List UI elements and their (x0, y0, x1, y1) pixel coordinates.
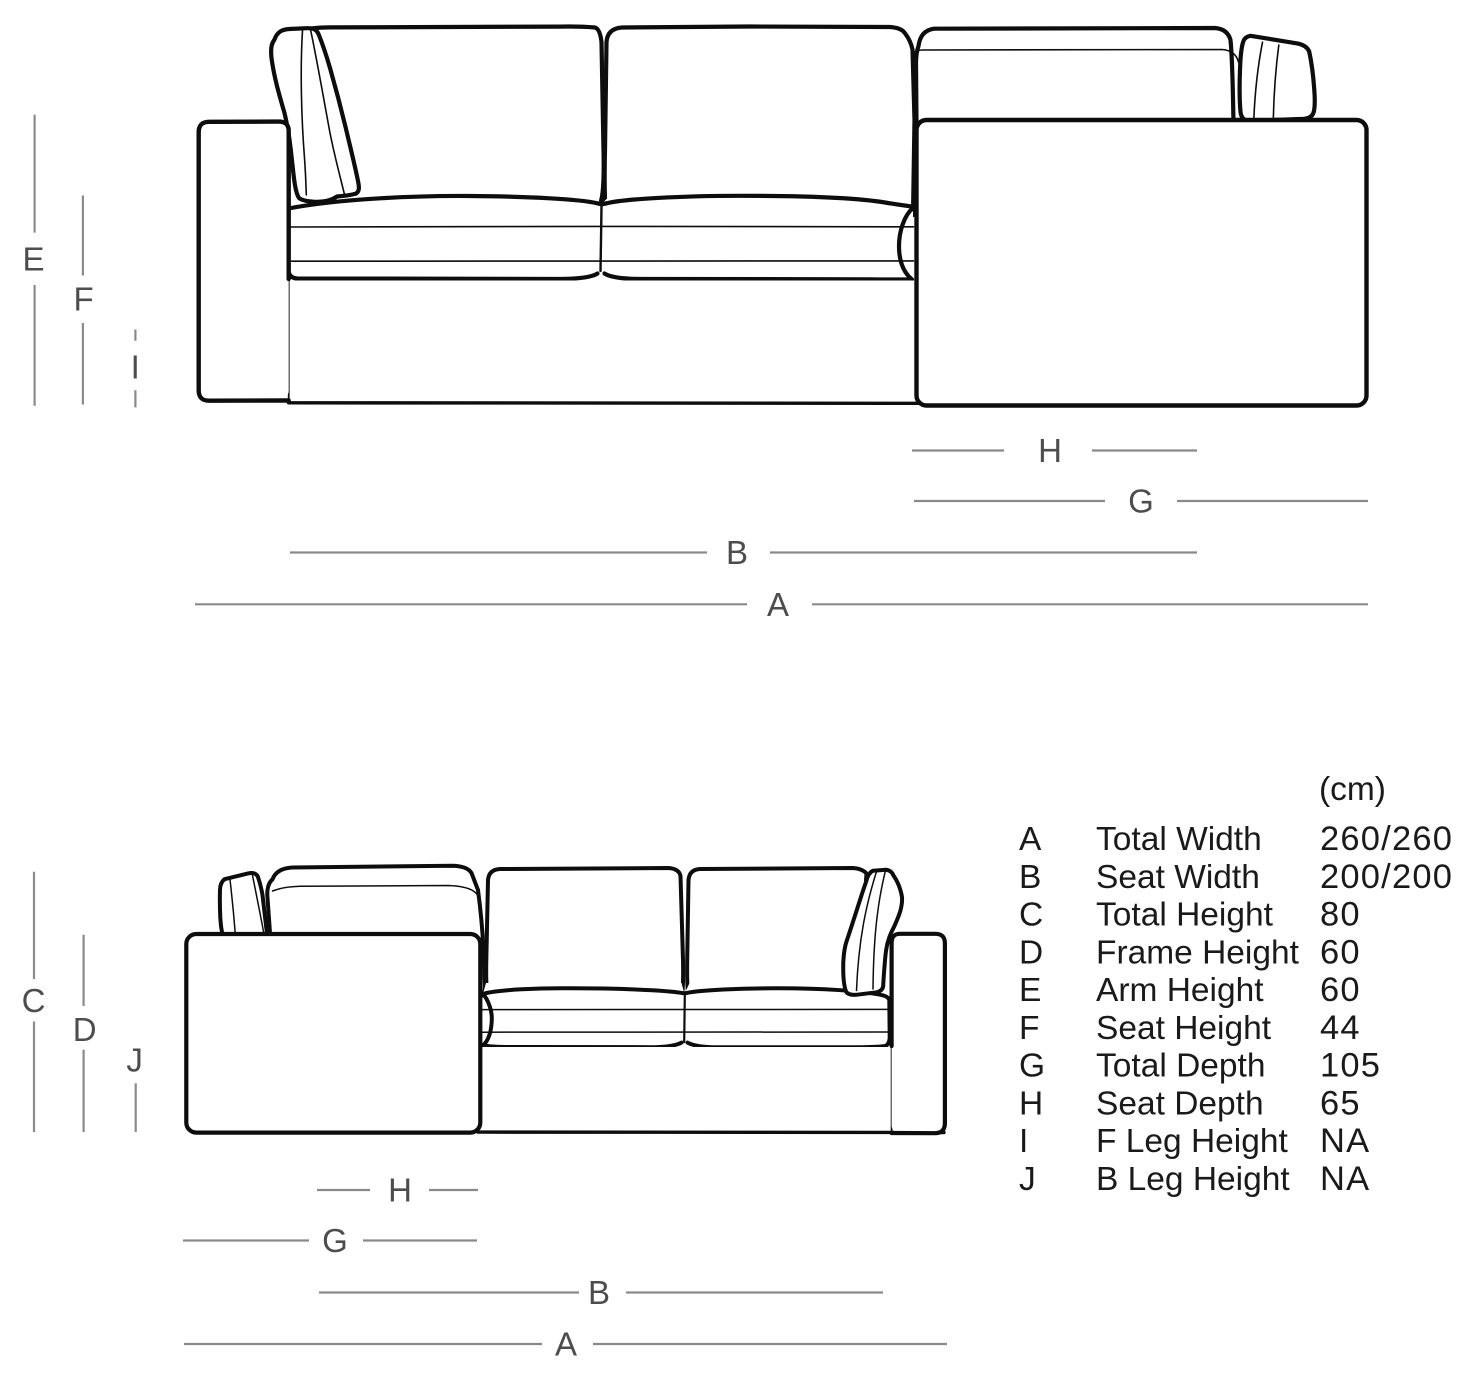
svg-text:D: D (73, 1011, 97, 1048)
svg-text:F: F (74, 281, 94, 318)
svg-text:J: J (126, 1042, 143, 1079)
svg-text:60: 60 (1320, 971, 1361, 1009)
svg-text:Seat Height: Seat Height (1096, 1010, 1272, 1047)
svg-text:G: G (322, 1222, 348, 1259)
svg-text:105: 105 (1320, 1047, 1381, 1085)
svg-text:E: E (22, 241, 44, 278)
svg-text:J: J (1019, 1161, 1036, 1198)
svg-text:B Leg Height: B Leg Height (1096, 1161, 1290, 1198)
svg-text:65: 65 (1320, 1084, 1361, 1122)
svg-text:I: I (131, 349, 140, 386)
svg-text:NA: NA (1320, 1122, 1370, 1160)
svg-text:44: 44 (1320, 1009, 1361, 1047)
svg-text:200/200: 200/200 (1320, 858, 1453, 896)
svg-text:80: 80 (1320, 896, 1361, 934)
svg-text:(cm): (cm) (1319, 771, 1386, 808)
svg-text:G: G (1019, 1048, 1045, 1085)
svg-text:F Leg Height: F Leg Height (1096, 1123, 1288, 1160)
svg-text:E: E (1019, 972, 1041, 1009)
svg-text:Seat Width: Seat Width (1096, 859, 1260, 896)
svg-text:Total Height: Total Height (1096, 897, 1274, 934)
svg-text:260/260: 260/260 (1320, 820, 1453, 858)
svg-text:Seat Depth: Seat Depth (1096, 1085, 1264, 1122)
svg-text:Total Width: Total Width (1096, 821, 1262, 858)
svg-text:A: A (555, 1326, 577, 1363)
svg-text:D: D (1019, 934, 1043, 971)
svg-text:H: H (388, 1172, 412, 1209)
svg-text:Total Depth: Total Depth (1096, 1048, 1265, 1085)
svg-text:I: I (1019, 1123, 1028, 1160)
svg-text:A: A (1019, 821, 1042, 858)
svg-text:C: C (1019, 897, 1043, 934)
svg-text:C: C (22, 982, 46, 1019)
svg-text:G: G (1128, 483, 1154, 520)
svg-text:60: 60 (1320, 933, 1361, 971)
svg-text:A: A (767, 586, 789, 623)
svg-text:NA: NA (1320, 1160, 1370, 1198)
svg-text:B: B (588, 1274, 610, 1311)
svg-text:F: F (1019, 1010, 1039, 1047)
svg-text:H: H (1019, 1085, 1043, 1122)
svg-text:Frame Height: Frame Height (1096, 934, 1300, 971)
svg-text:H: H (1038, 432, 1062, 469)
svg-text:B: B (726, 534, 748, 571)
svg-text:Arm Height: Arm Height (1096, 972, 1264, 1009)
svg-text:B: B (1019, 859, 1041, 896)
